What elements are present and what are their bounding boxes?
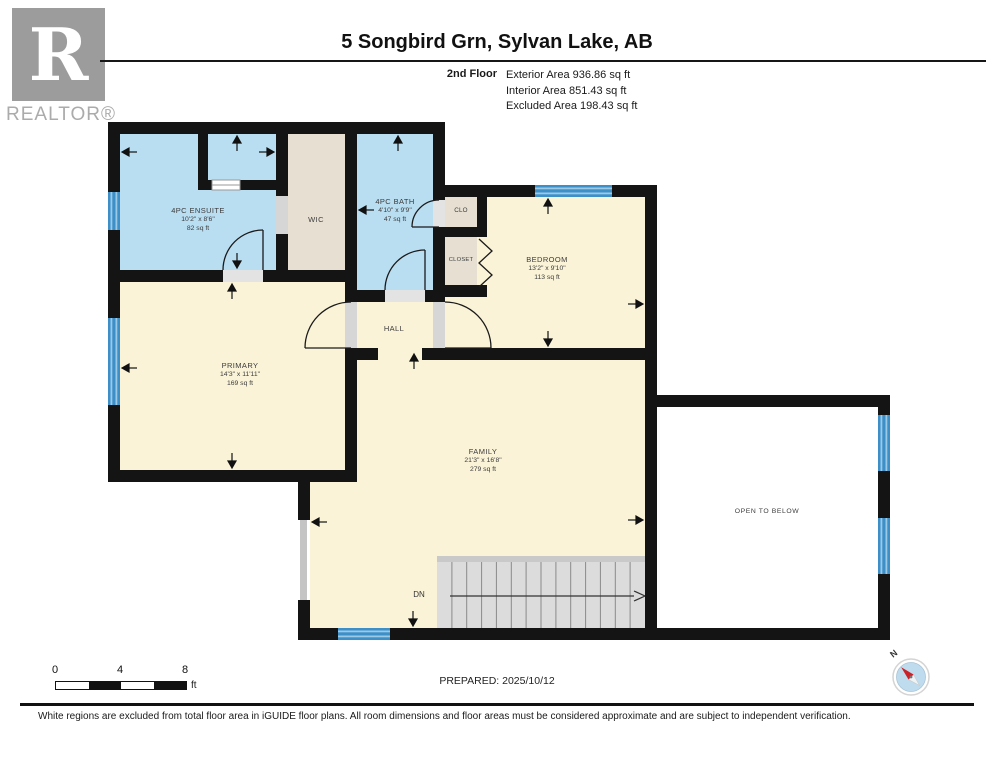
room-label-bath: 4PC BATH 4'10" x 9'9" 47 sq ft <box>353 197 437 224</box>
prepared-date: PREPARED: 2025/10/12 <box>0 675 994 687</box>
open-railing <box>300 520 307 600</box>
room-label-open-to-below: OPEN TO BELOW <box>687 508 847 517</box>
footer-divider <box>20 703 974 706</box>
sliding-door <box>212 180 240 190</box>
room-label-hall: HALL <box>364 324 424 334</box>
floorplan-page: R REALTOR® 5 Songbird Grn, Sylvan Lake, … <box>0 0 994 768</box>
floorplan-drawing: N <box>0 0 994 768</box>
stairs-down-label: DN <box>404 590 434 599</box>
compass-north-label: N <box>888 648 899 660</box>
stairs <box>437 556 645 628</box>
room-label-primary: PRIMARY 14'3" x 11'11" 169 sq ft <box>160 361 320 388</box>
room-label-family: FAMILY 21'3" x 16'8" 279 sq ft <box>403 447 563 474</box>
room-label-bedroom: BEDROOM 13'2" x 9'10" 113 sq ft <box>467 255 627 282</box>
room-label-ensuite: 4PC ENSUITE 10'2" x 8'6" 82 sq ft <box>118 206 278 233</box>
room-label-wic: WIC <box>286 215 346 225</box>
compass-icon: N <box>888 648 929 695</box>
room-label-clo: CLO <box>441 207 481 215</box>
disclaimer-text: White regions are excluded from total fl… <box>38 711 958 722</box>
